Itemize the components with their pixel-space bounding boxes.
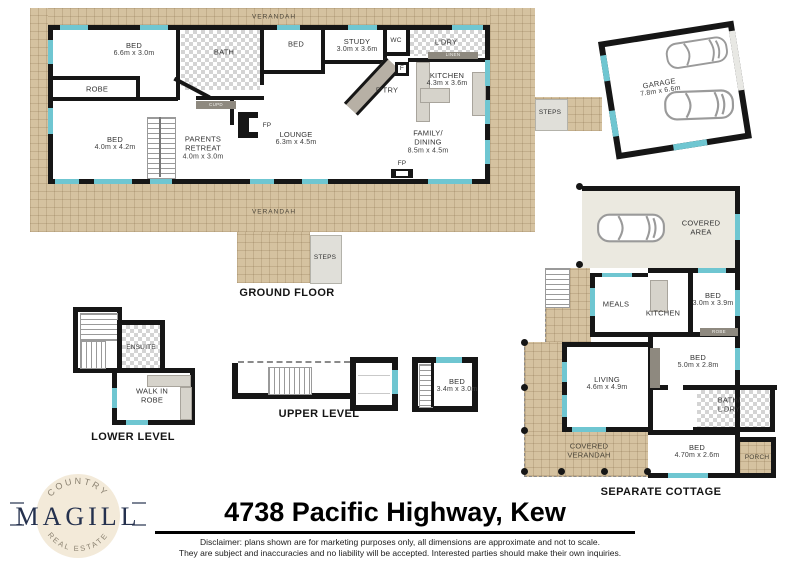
wall bbox=[648, 430, 740, 435]
wall bbox=[176, 25, 180, 100]
kitchen-island bbox=[420, 88, 450, 103]
room-label-laundry: L'DRY bbox=[435, 37, 457, 46]
robe-label: ROBE bbox=[712, 330, 726, 335]
room-name: STUDY bbox=[344, 37, 370, 46]
shelf-line bbox=[358, 375, 390, 376]
verandah-post bbox=[521, 384, 528, 391]
room-dims: 8.5m x 4.5m bbox=[405, 147, 451, 156]
window-marker bbox=[140, 25, 168, 30]
wall bbox=[562, 342, 652, 347]
window-marker bbox=[673, 139, 708, 150]
upper-level-title: UPPER LEVEL bbox=[279, 408, 360, 420]
window-marker bbox=[250, 179, 274, 184]
room-name: PORCH bbox=[745, 454, 769, 461]
linen-cupboard: LINEN bbox=[428, 52, 478, 59]
robe-shelf bbox=[180, 387, 192, 420]
room-name: BED bbox=[690, 353, 706, 362]
window-marker bbox=[668, 473, 708, 478]
wall bbox=[262, 70, 325, 74]
steps-label: STEPS bbox=[539, 109, 561, 117]
window-marker bbox=[602, 273, 632, 277]
room-dims: 4.3m x 3.6m bbox=[427, 80, 468, 89]
room-name: BED bbox=[449, 377, 465, 386]
room-name: BED bbox=[107, 135, 123, 144]
stairs bbox=[147, 117, 176, 179]
room-label-kitchen: KITCHEN bbox=[646, 308, 680, 317]
verandah-protrusion bbox=[237, 232, 310, 283]
room-dims: 6.6m x 3.0m bbox=[114, 50, 155, 59]
wall bbox=[406, 25, 410, 55]
verandah-post bbox=[521, 427, 528, 434]
verandah-band-left bbox=[30, 8, 48, 232]
stairs bbox=[268, 367, 312, 395]
robe-shelf bbox=[147, 375, 191, 387]
room-name: KITCHEN bbox=[430, 71, 464, 80]
wall bbox=[260, 25, 264, 85]
window-marker bbox=[485, 140, 490, 164]
wall bbox=[323, 60, 385, 64]
room-dims: 6.3m x 4.5m bbox=[276, 139, 317, 148]
window-marker bbox=[94, 179, 132, 184]
wall bbox=[648, 268, 740, 273]
cottage-verandah-strip bbox=[524, 342, 566, 432]
room-name: PARENTS RETREAT bbox=[185, 134, 221, 152]
room-dims: 4.6m x 4.9m bbox=[587, 384, 628, 393]
verandah-post bbox=[521, 468, 528, 475]
address-heading: 4738 Pacific Highway, Kew bbox=[155, 497, 635, 534]
room-label-bed: BED bbox=[288, 39, 304, 48]
fireplace-opening bbox=[396, 171, 408, 176]
logo-brand-text: MAGILL bbox=[15, 502, 140, 531]
ceiling-line bbox=[238, 361, 350, 363]
car-icon bbox=[662, 86, 735, 124]
window-marker bbox=[55, 179, 79, 184]
window-marker bbox=[436, 357, 462, 363]
window-marker bbox=[735, 214, 740, 240]
verandah-band-right bbox=[490, 8, 535, 232]
room-name: BED bbox=[288, 39, 304, 48]
room-name: KITCHEN bbox=[646, 308, 680, 317]
room-label-bath-laundry: BATH/ L'DRY bbox=[711, 396, 747, 415]
room-label-bed: BED5.0m x 2.8m bbox=[678, 353, 719, 371]
cupd-label: CUPD bbox=[209, 103, 223, 108]
window-marker bbox=[485, 60, 490, 86]
room-name: F bbox=[400, 65, 404, 72]
window-marker bbox=[600, 55, 610, 82]
steps-label: STEPS bbox=[314, 254, 336, 262]
stairs bbox=[545, 268, 570, 308]
linen-label: LINEN bbox=[446, 53, 461, 58]
garage-door-marker bbox=[729, 30, 744, 90]
wall bbox=[770, 385, 775, 432]
upper-level-room bbox=[350, 357, 398, 411]
room-label-bed: BED4.70m x 2.6m bbox=[675, 443, 720, 461]
wall bbox=[431, 363, 434, 407]
room-name: LOUNGE bbox=[280, 130, 313, 139]
robe-cupboard: ROBE bbox=[700, 328, 738, 336]
window-marker bbox=[126, 420, 148, 425]
room-name: ENSUITE bbox=[126, 344, 156, 351]
verandah-post bbox=[558, 468, 565, 475]
room-label-family-dining: FAMILY/ DINING8.5m x 4.5m bbox=[405, 128, 451, 156]
cupboard: CUPD bbox=[196, 101, 236, 109]
verandah-label-top: VERANDAH bbox=[252, 14, 296, 21]
window-marker bbox=[562, 362, 567, 382]
room-label-fridge: F bbox=[400, 65, 404, 73]
kitchen-bench bbox=[650, 280, 668, 312]
kitchen-bench bbox=[472, 72, 486, 116]
room-dims: 4.0m x 3.0m bbox=[176, 153, 230, 162]
wall bbox=[48, 76, 140, 80]
verandah-post bbox=[601, 468, 608, 475]
verandah-post bbox=[576, 261, 583, 268]
room-name: MEALS bbox=[603, 299, 629, 308]
window-marker bbox=[452, 25, 483, 30]
wall bbox=[48, 25, 490, 30]
room-name: LIVING bbox=[594, 375, 620, 384]
window-marker bbox=[150, 179, 172, 184]
room-label-pantry: P'TRY bbox=[376, 85, 398, 94]
floorplan-page: LINEN CUPD VERANDAH VERANDAH STEPS STEPS… bbox=[0, 0, 800, 566]
room-name: FP bbox=[398, 160, 407, 167]
window-marker bbox=[302, 179, 328, 184]
window-marker bbox=[48, 40, 53, 64]
window-marker bbox=[698, 268, 726, 273]
wall bbox=[562, 342, 567, 432]
wall bbox=[740, 473, 776, 478]
fireplace-label: FP bbox=[398, 160, 407, 168]
window-marker bbox=[428, 179, 472, 184]
room-label-meals: MEALS bbox=[603, 299, 629, 308]
room-label-ensuite: ENSUITE bbox=[126, 344, 156, 352]
room-dims: 3.4m x 3.0m bbox=[437, 386, 478, 395]
window-marker bbox=[60, 25, 88, 30]
room-label-robe: ROBE bbox=[86, 84, 108, 93]
room-name: COVERED AREA bbox=[682, 219, 721, 237]
disclaimer-line1: Disclaimer: plans shown are for marketin… bbox=[0, 537, 800, 547]
room-label-covered-verandah: COVERED VERANDAH bbox=[557, 442, 621, 461]
room-label-bed: BED6.6m x 3.0m bbox=[114, 41, 155, 59]
car-icon bbox=[663, 32, 731, 74]
room-label-kitchen: KITCHEN4.3m x 3.6m bbox=[427, 71, 468, 89]
verandah-post bbox=[644, 468, 651, 475]
stairs bbox=[80, 313, 118, 341]
window-marker bbox=[735, 348, 740, 370]
wall bbox=[683, 385, 777, 390]
window-marker bbox=[392, 370, 398, 394]
room-label-bed: BED3.4m x 3.0m bbox=[437, 377, 478, 395]
window-marker bbox=[735, 290, 740, 316]
room-name: ROBE bbox=[86, 84, 108, 93]
room-label-parents-retreat: PARENTS RETREAT4.0m x 3.0m bbox=[176, 134, 230, 162]
room-label-porch: PORCH bbox=[745, 454, 769, 462]
fireplace-opening bbox=[249, 118, 258, 132]
room-label-covered-area: COVERED AREA bbox=[674, 219, 728, 238]
room-label-wc: WC bbox=[390, 37, 401, 45]
room-name: BATH bbox=[214, 47, 234, 56]
room-name: BED bbox=[689, 443, 705, 452]
room-label-bed: BED3.0m x 3.9m bbox=[693, 291, 734, 309]
verandah-label-bottom: VERANDAH bbox=[252, 209, 296, 216]
disclaimer-line2: They are subject and inaccuracies and no… bbox=[0, 548, 800, 558]
shelf-line bbox=[358, 393, 390, 394]
window-marker bbox=[348, 25, 377, 30]
wall bbox=[321, 25, 325, 72]
room-name: P'TRY bbox=[376, 85, 398, 94]
window-marker bbox=[48, 108, 53, 134]
room-name: COVERED VERANDAH bbox=[567, 442, 610, 460]
room-label-bath: BATH bbox=[214, 47, 234, 56]
ground-floor-title: GROUND FLOOR bbox=[239, 287, 334, 299]
room-label-lounge: LOUNGE6.3m x 4.5m bbox=[276, 130, 317, 148]
window-marker bbox=[277, 25, 300, 30]
stairs bbox=[80, 341, 106, 369]
window-marker bbox=[485, 100, 490, 124]
room-name: FAMILY/ DINING bbox=[413, 128, 443, 146]
room-label-walk-in-robe: WALK IN ROBE bbox=[135, 387, 169, 406]
stair-rail bbox=[159, 117, 161, 177]
bath-tiles bbox=[181, 30, 260, 90]
wall bbox=[771, 437, 776, 478]
room-name: FP bbox=[263, 122, 272, 129]
room-name: WC bbox=[390, 37, 401, 44]
window-marker bbox=[112, 388, 117, 408]
verandah-post bbox=[521, 339, 528, 346]
wall bbox=[582, 186, 740, 191]
room-name: WALK IN ROBE bbox=[136, 387, 168, 405]
room-dims: 4.0m x 4.2m bbox=[95, 144, 136, 153]
wall bbox=[136, 76, 140, 101]
room-name: BED bbox=[126, 41, 142, 50]
wall bbox=[383, 52, 410, 56]
room-name: BED bbox=[705, 291, 721, 300]
window-marker bbox=[609, 110, 619, 137]
window-marker bbox=[590, 288, 595, 316]
verandah-post bbox=[576, 183, 583, 190]
room-dims: 3.0m x 3.6m bbox=[337, 46, 378, 55]
room-name: BATH/ L'DRY bbox=[718, 396, 741, 414]
window-marker bbox=[572, 427, 606, 432]
fireplace-label: FP bbox=[263, 122, 272, 130]
room-label-bed: BED4.0m x 4.2m bbox=[95, 135, 136, 153]
wardrobe bbox=[650, 348, 660, 388]
garage-plan: GARAGE7.8m x 6.6m bbox=[598, 21, 752, 160]
wall bbox=[48, 97, 178, 101]
room-dims: 5.0m x 2.8m bbox=[678, 362, 719, 371]
room-label-living: LIVING4.6m x 4.9m bbox=[587, 375, 628, 393]
room-name: L'DRY bbox=[435, 37, 457, 46]
lower-level-title: LOWER LEVEL bbox=[91, 431, 175, 443]
room-label-study: STUDY3.0m x 3.6m bbox=[337, 37, 378, 55]
room-dims: 3.0m x 3.9m bbox=[693, 300, 734, 309]
room-dims: 4.70m x 2.6m bbox=[675, 452, 720, 461]
window-marker bbox=[562, 395, 567, 417]
car-icon bbox=[596, 210, 666, 246]
